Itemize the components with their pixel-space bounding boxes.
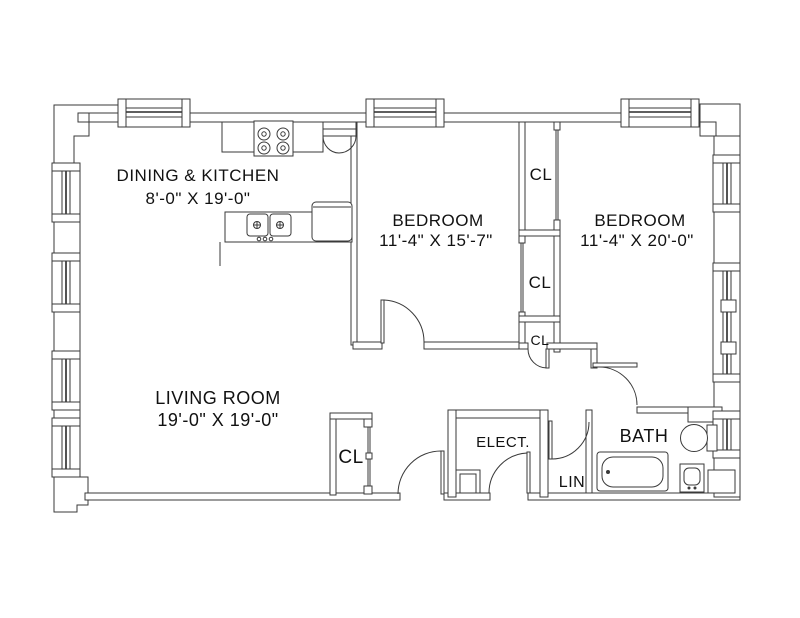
- closet2-sliding-door: [521, 243, 523, 312]
- floor-plan-drawing: DINING & KITCHEN 8'-0" X 19'-0" BEDROOM …: [0, 0, 800, 618]
- floor-plan: DINING & KITCHEN 8'-0" X 19'-0" BEDROOM …: [0, 0, 800, 618]
- bath-top-wall: [637, 407, 690, 413]
- living-closet-top-wall: [330, 413, 372, 419]
- elect-top-wall: [448, 410, 548, 418]
- elect-label: ELECT.: [476, 434, 530, 451]
- closet-divider: [519, 316, 560, 322]
- closet-top-label: CL: [530, 165, 553, 184]
- window-top-2: [366, 99, 444, 127]
- linen-door: [549, 421, 589, 459]
- window-right-1: [713, 155, 740, 212]
- bedroom2-door: [593, 363, 637, 405]
- dining-kitchen-dims: 8'-0" X 19'-0": [146, 189, 251, 208]
- stove: [254, 121, 293, 156]
- toilet: [681, 425, 718, 452]
- living-closet-left-wall: [330, 413, 336, 495]
- closet-divider: [519, 230, 560, 236]
- closet-bottom-label: CL: [531, 332, 550, 348]
- closet3-door: [528, 349, 549, 368]
- bedroom1-bottom-wall: [424, 342, 523, 349]
- elect-door: [489, 452, 530, 493]
- window-top-1: [118, 99, 190, 127]
- living-room-dims: 19'-0" X 19'-0": [157, 410, 278, 430]
- bathroom-sink: [680, 464, 704, 492]
- closet-door-jamb: [364, 486, 372, 494]
- elect-right-wall: [540, 410, 548, 497]
- refrigerator: [312, 202, 352, 241]
- closet-left-wall: [519, 122, 525, 238]
- bath-chase-block: [708, 470, 735, 493]
- closet-door-jamb: [519, 236, 525, 243]
- elect-left-wall: [448, 410, 456, 497]
- room-labels: DINING & KITCHEN 8'-0" X 19'-0" BEDROOM …: [117, 165, 694, 491]
- closet-door-jamb: [364, 419, 372, 427]
- bedroom-left-dims: 11'-4" X 15'-7": [379, 231, 493, 250]
- window-left-3: [52, 351, 80, 410]
- bottom-wall: [85, 493, 400, 500]
- bedroom1-bottom-wall: [353, 342, 382, 349]
- electrical-panel-inner: [460, 474, 476, 493]
- window-left-4: [52, 418, 80, 477]
- bedroom-right-label: BEDROOM: [594, 211, 685, 230]
- windows: [52, 99, 740, 477]
- dining-kitchen-label: DINING & KITCHEN: [117, 166, 280, 185]
- bath-label: BATH: [620, 426, 669, 446]
- closet-door-jamb: [554, 122, 560, 130]
- closet-bottom-wall: [519, 343, 528, 349]
- window-left-2: [52, 253, 80, 312]
- window-mullion: [721, 300, 736, 312]
- bedroom1-door: [381, 300, 424, 343]
- window-left-1: [52, 163, 80, 222]
- bedroom-left-label: BEDROOM: [392, 211, 483, 230]
- closet-door-handle: [366, 453, 372, 459]
- linen-label: LIN: [559, 474, 585, 491]
- closet-right-wall: [554, 220, 560, 352]
- living-room-label: LIVING ROOM: [155, 388, 281, 408]
- closet1-sliding-door: [556, 130, 558, 220]
- bottom-wall: [528, 493, 740, 500]
- window-right-2: [713, 263, 740, 382]
- bathtub: [597, 452, 668, 491]
- entry-door: [398, 451, 444, 494]
- bedroom-right-dims: 11'-4" X 20'-0": [580, 231, 694, 250]
- window-mullion: [721, 342, 736, 354]
- closet-middle-label: CL: [529, 273, 552, 292]
- bottom-left-bay: [54, 477, 88, 512]
- closet-living-label: CL: [338, 447, 363, 468]
- window-top-3: [621, 99, 699, 127]
- hall-wall: [547, 343, 597, 349]
- top-right-corner-step: [700, 122, 716, 136]
